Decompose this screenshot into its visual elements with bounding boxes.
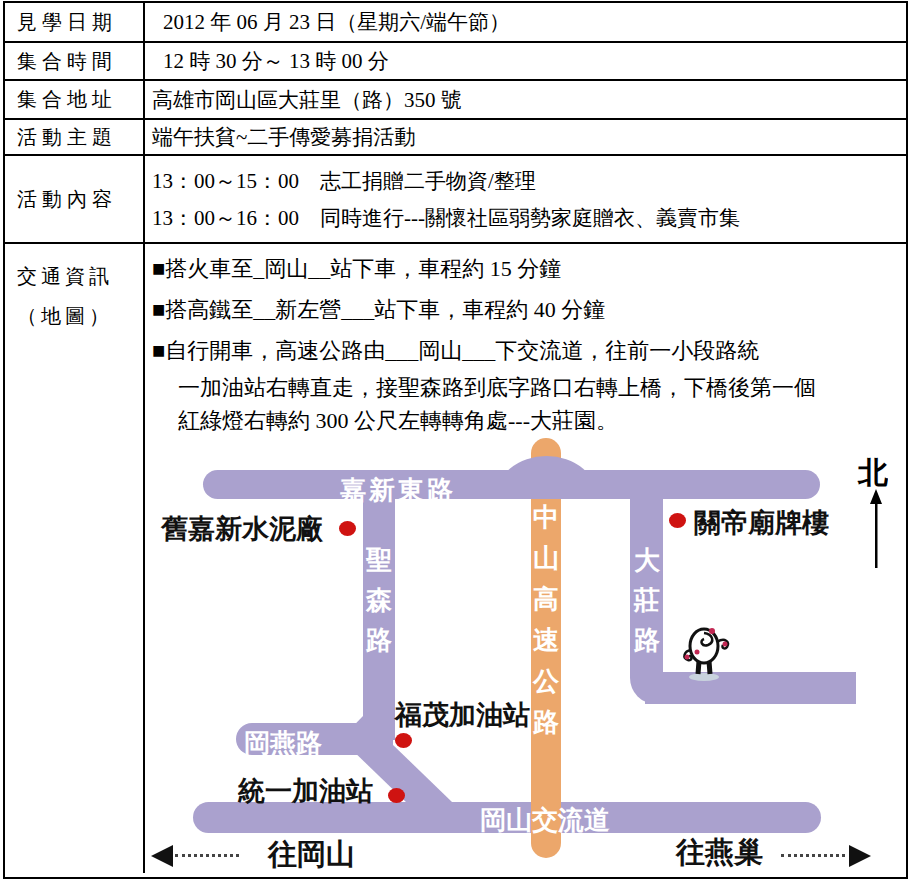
table-row: 活動內容 13：00～15：00 志工捐贈二手物資/整理 13：00～16：00… [5, 156, 906, 244]
route-map: 嘉新東路 聖森路 大莊路 中山高速公路 岡燕路 岡山交流道 舊嘉新水泥廠 關帝廟… [148, 437, 888, 877]
transport-bullet-hsr: ■搭高鐵至__新左營___站下車，車程約 40 分鐘 [152, 289, 906, 330]
row-label-theme: 活動主題 [5, 120, 145, 154]
event-info-table: 見學日期 2012 年 06 月 23 日（星期六/端午節） 集合時間 12 時… [3, 1, 908, 879]
row-value-transport: ■搭火車至_岡山__站下車，車程約 15 分鐘 ■搭高鐵至__新左營___站下車… [145, 244, 906, 873]
transport-text: ■搭火車至_岡山__站下車，車程約 15 分鐘 ■搭高鐵至__新左營___站下車… [145, 244, 906, 437]
marker-fumao-gas-station [395, 733, 412, 748]
row-label-date: 見學日期 [5, 3, 145, 41]
road-label-zhongshan-freeway: 中山高速公路 [532, 497, 560, 743]
road-label-gangyan: 岡燕路 [244, 726, 322, 761]
table-row: 交通資訊 （地圖） ■搭火車至_岡山__站下車，車程約 15 分鐘 ■搭高鐵至_… [5, 244, 906, 873]
row-value-date: 2012 年 06 月 23 日（星期六/端午節） [145, 3, 906, 41]
table-row: 集合時間 12 時 30 分～ 13 時 00 分 [5, 43, 906, 81]
dashed-line-left [175, 854, 239, 857]
marker-guandi-temple-gate [669, 513, 686, 528]
poi-label-uni-gas-station: 統一加油站 [238, 773, 373, 809]
transport-bullet-drive: ■自行開車，高速公路由___岡山___下交流道，往前一小段路統 [152, 330, 906, 371]
activity-line-2: 13：00～16：00 同時進行---關懷社區弱勢家庭贈衣、義賣市集 [152, 200, 906, 237]
transport-drive-cont-2: 紅綠燈右轉約 300 公尺左轉轉角處---大莊園。 [152, 404, 906, 437]
direction-label-to-yanchao: 往燕巢 [676, 833, 763, 873]
road-dazhuang-east-arm [645, 672, 856, 704]
marker-old-cement-factory [339, 521, 356, 536]
transport-drive-cont-1: 一加油站右轉直走，接聖森路到底字路口右轉上橋，下橋後第一個 [152, 371, 906, 404]
mascot-doodle [678, 620, 732, 682]
table-row: 集合地址 高雄市岡山區大莊里（路）350 號 [5, 81, 906, 120]
road-label-dazhuang: 大莊路 [633, 540, 661, 660]
compass-north-label: 北 [858, 453, 888, 494]
direction-label-to-gangshan: 往岡山 [268, 835, 355, 875]
road-label-gangshan-interchange: 岡山交流道 [480, 803, 610, 838]
row-label-meet-address: 集合地址 [5, 81, 145, 118]
transport-bullet-train: ■搭火車至_岡山__站下車，車程約 15 分鐘 [152, 248, 906, 289]
marker-uni-gas-station [388, 788, 405, 803]
road-label-shengsen: 聖森路 [365, 540, 393, 660]
row-label-transport: 交通資訊 （地圖） [5, 244, 145, 873]
arrow-left-icon [151, 845, 173, 867]
row-label-meet-time: 集合時間 [5, 43, 145, 79]
transport-label-line1: 交通資訊 [17, 256, 113, 296]
row-value-meet-address: 高雄市岡山區大莊里（路）350 號 [145, 81, 906, 118]
row-label-content: 活動內容 [5, 156, 145, 242]
row-value-theme: 端午扶貧~二手傳愛募捐活動 [145, 120, 906, 154]
row-value-meet-time: 12 時 30 分～ 13 時 00 分 [145, 43, 906, 79]
north-arrow-icon [868, 489, 884, 569]
arrow-right-icon [849, 845, 871, 867]
transport-label-line2: （地圖） [17, 296, 113, 336]
road-label-jiaxin-east: 嘉新東路 [340, 473, 456, 508]
activity-line-1: 13：00～15：00 志工捐贈二手物資/整理 [152, 163, 906, 200]
poi-label-guandi-temple-gate: 關帝廟牌樓 [694, 505, 829, 541]
row-value-content: 13：00～15：00 志工捐贈二手物資/整理 13：00～16：00 同時進行… [145, 156, 906, 242]
poi-label-fumao-gas-station: 福茂加油站 [395, 697, 530, 733]
table-row: 見學日期 2012 年 06 月 23 日（星期六/端午節） [5, 3, 906, 43]
dashed-line-right [781, 854, 845, 857]
poi-label-old-cement-factory: 舊嘉新水泥廠 [161, 511, 323, 547]
road-jiaxin-east [203, 470, 820, 499]
table-row: 活動主題 端午扶貧~二手傳愛募捐活動 [5, 120, 906, 156]
